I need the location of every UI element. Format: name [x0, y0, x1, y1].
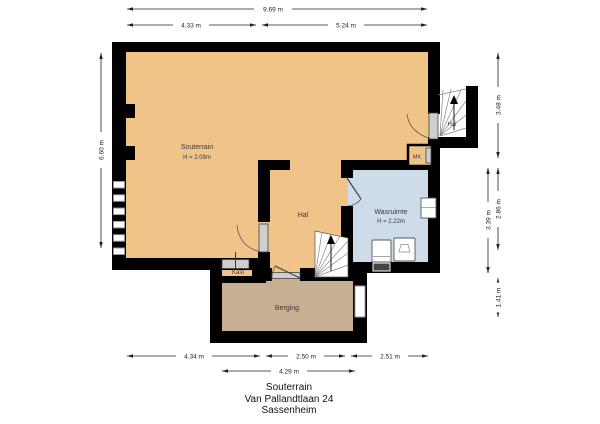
dim-left-side: 6.60 m	[99, 140, 106, 160]
souterrain-label: Souterrain	[181, 144, 213, 151]
souterrain-height: H = 2.09m	[183, 155, 211, 161]
basement-window	[114, 235, 125, 242]
floorplan-page: MK Hal Souterrain H = 2	[0, 0, 600, 424]
berging-window	[355, 286, 365, 317]
hal-label: Hal	[298, 212, 309, 219]
hal-door-leaf	[259, 224, 268, 252]
room-floors	[122, 48, 466, 333]
meterkast-label: MK	[413, 155, 422, 161]
dim-bottom-left: 4.34 m	[184, 354, 204, 361]
dim-bottom-inner: 4.29 m	[279, 369, 299, 376]
dryer	[394, 238, 415, 261]
wasruimte-height: H = 2.22m	[377, 219, 405, 225]
kast-label: Kast	[232, 270, 244, 276]
dim-top-left: 4.33 m	[181, 23, 201, 30]
dim-right-mid-outer: 2.86 m	[496, 199, 503, 219]
wasruimte-label: Wasruimte	[374, 209, 407, 216]
title-block: Souterrain Van Pallandtlaan 24 Sassenhei…	[245, 382, 334, 416]
stairs-hal	[315, 231, 348, 277]
meterkast-closet: MK	[408, 145, 432, 166]
basement-window	[114, 208, 125, 215]
dim-bottom-middle: 2.50 m	[296, 354, 316, 361]
stair-hall-label: Hal	[447, 122, 456, 128]
dim-right-bottom: 1.41 m	[496, 288, 503, 308]
basement-window	[114, 195, 125, 202]
dim-right-mid-inner: 3.39 m	[486, 210, 493, 230]
boiler	[421, 198, 436, 218]
washing-machine	[372, 240, 391, 262]
vent-hatch	[373, 263, 390, 271]
floorplan-drawing: MK Hal Souterrain H = 2	[0, 0, 600, 424]
basement-window	[114, 182, 125, 189]
dim-bottom-right: 2.51 m	[380, 354, 400, 361]
basement-window	[114, 248, 125, 255]
stairhall-door-leaf	[429, 113, 438, 139]
meterkast-door	[426, 148, 431, 163]
dim-top-total: 9.69 m	[263, 7, 283, 14]
basement-window	[114, 221, 125, 228]
dim-right-top: 3.48 m	[496, 95, 503, 115]
title-address: Van Pallandtlaan 24	[245, 394, 334, 405]
berging-label: Berging	[275, 305, 299, 312]
dim-top-right: 5.24 m	[336, 23, 356, 30]
title-floor: Souterrain	[266, 382, 312, 393]
title-city: Sassenheim	[261, 405, 316, 416]
